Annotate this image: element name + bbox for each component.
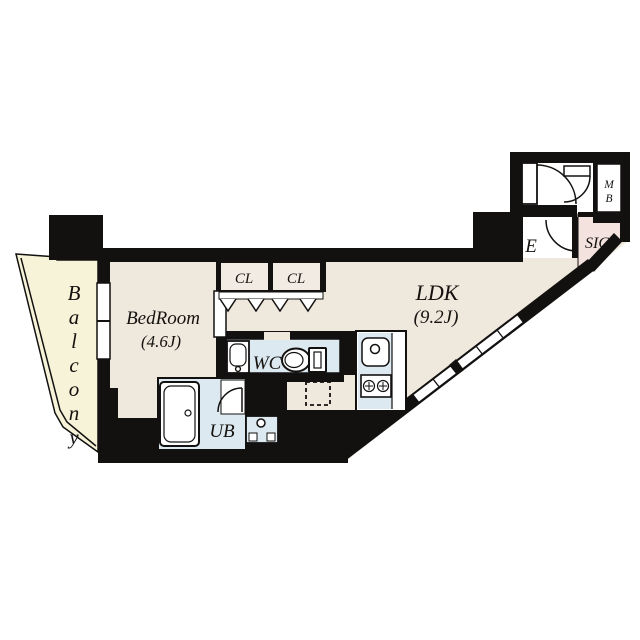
bedroom-size-label: (4.6J) bbox=[141, 332, 181, 351]
floor-plan-page: Balcony BedRoom (4.6J) LDK (9.2J) CL CL … bbox=[0, 0, 640, 640]
floor-plan-drawing: Balcony BedRoom (4.6J) LDK (9.2J) CL CL … bbox=[0, 0, 640, 640]
toilet bbox=[282, 348, 326, 372]
washing-machine-pan bbox=[246, 416, 278, 443]
meter-box-label-m: M bbox=[603, 179, 615, 191]
sic-label: SIC bbox=[585, 235, 609, 252]
ub-door-arc bbox=[218, 380, 245, 414]
closet1-label: CL bbox=[235, 271, 253, 287]
balcony-label: Balcony bbox=[67, 281, 80, 449]
bathtub bbox=[160, 382, 199, 446]
bedroom-label: BedRoom bbox=[126, 308, 200, 329]
ub-label: UB bbox=[209, 421, 235, 442]
bedroom-window bbox=[97, 283, 110, 359]
kitchen-unit bbox=[356, 331, 406, 411]
meter-box-label-b: B bbox=[605, 193, 612, 205]
stove bbox=[361, 375, 391, 397]
refrigerator-space bbox=[306, 382, 330, 405]
entrance-label: E bbox=[524, 236, 537, 257]
kitchen-sink bbox=[362, 338, 389, 366]
ldk-label: LDK bbox=[415, 280, 460, 305]
wc-vanity-sink bbox=[227, 341, 249, 373]
closet2-label: CL bbox=[287, 271, 305, 287]
wc-label: WC bbox=[253, 353, 282, 374]
wc-door-opening bbox=[264, 332, 290, 340]
ldk-size-label: (9.2J) bbox=[414, 307, 459, 328]
